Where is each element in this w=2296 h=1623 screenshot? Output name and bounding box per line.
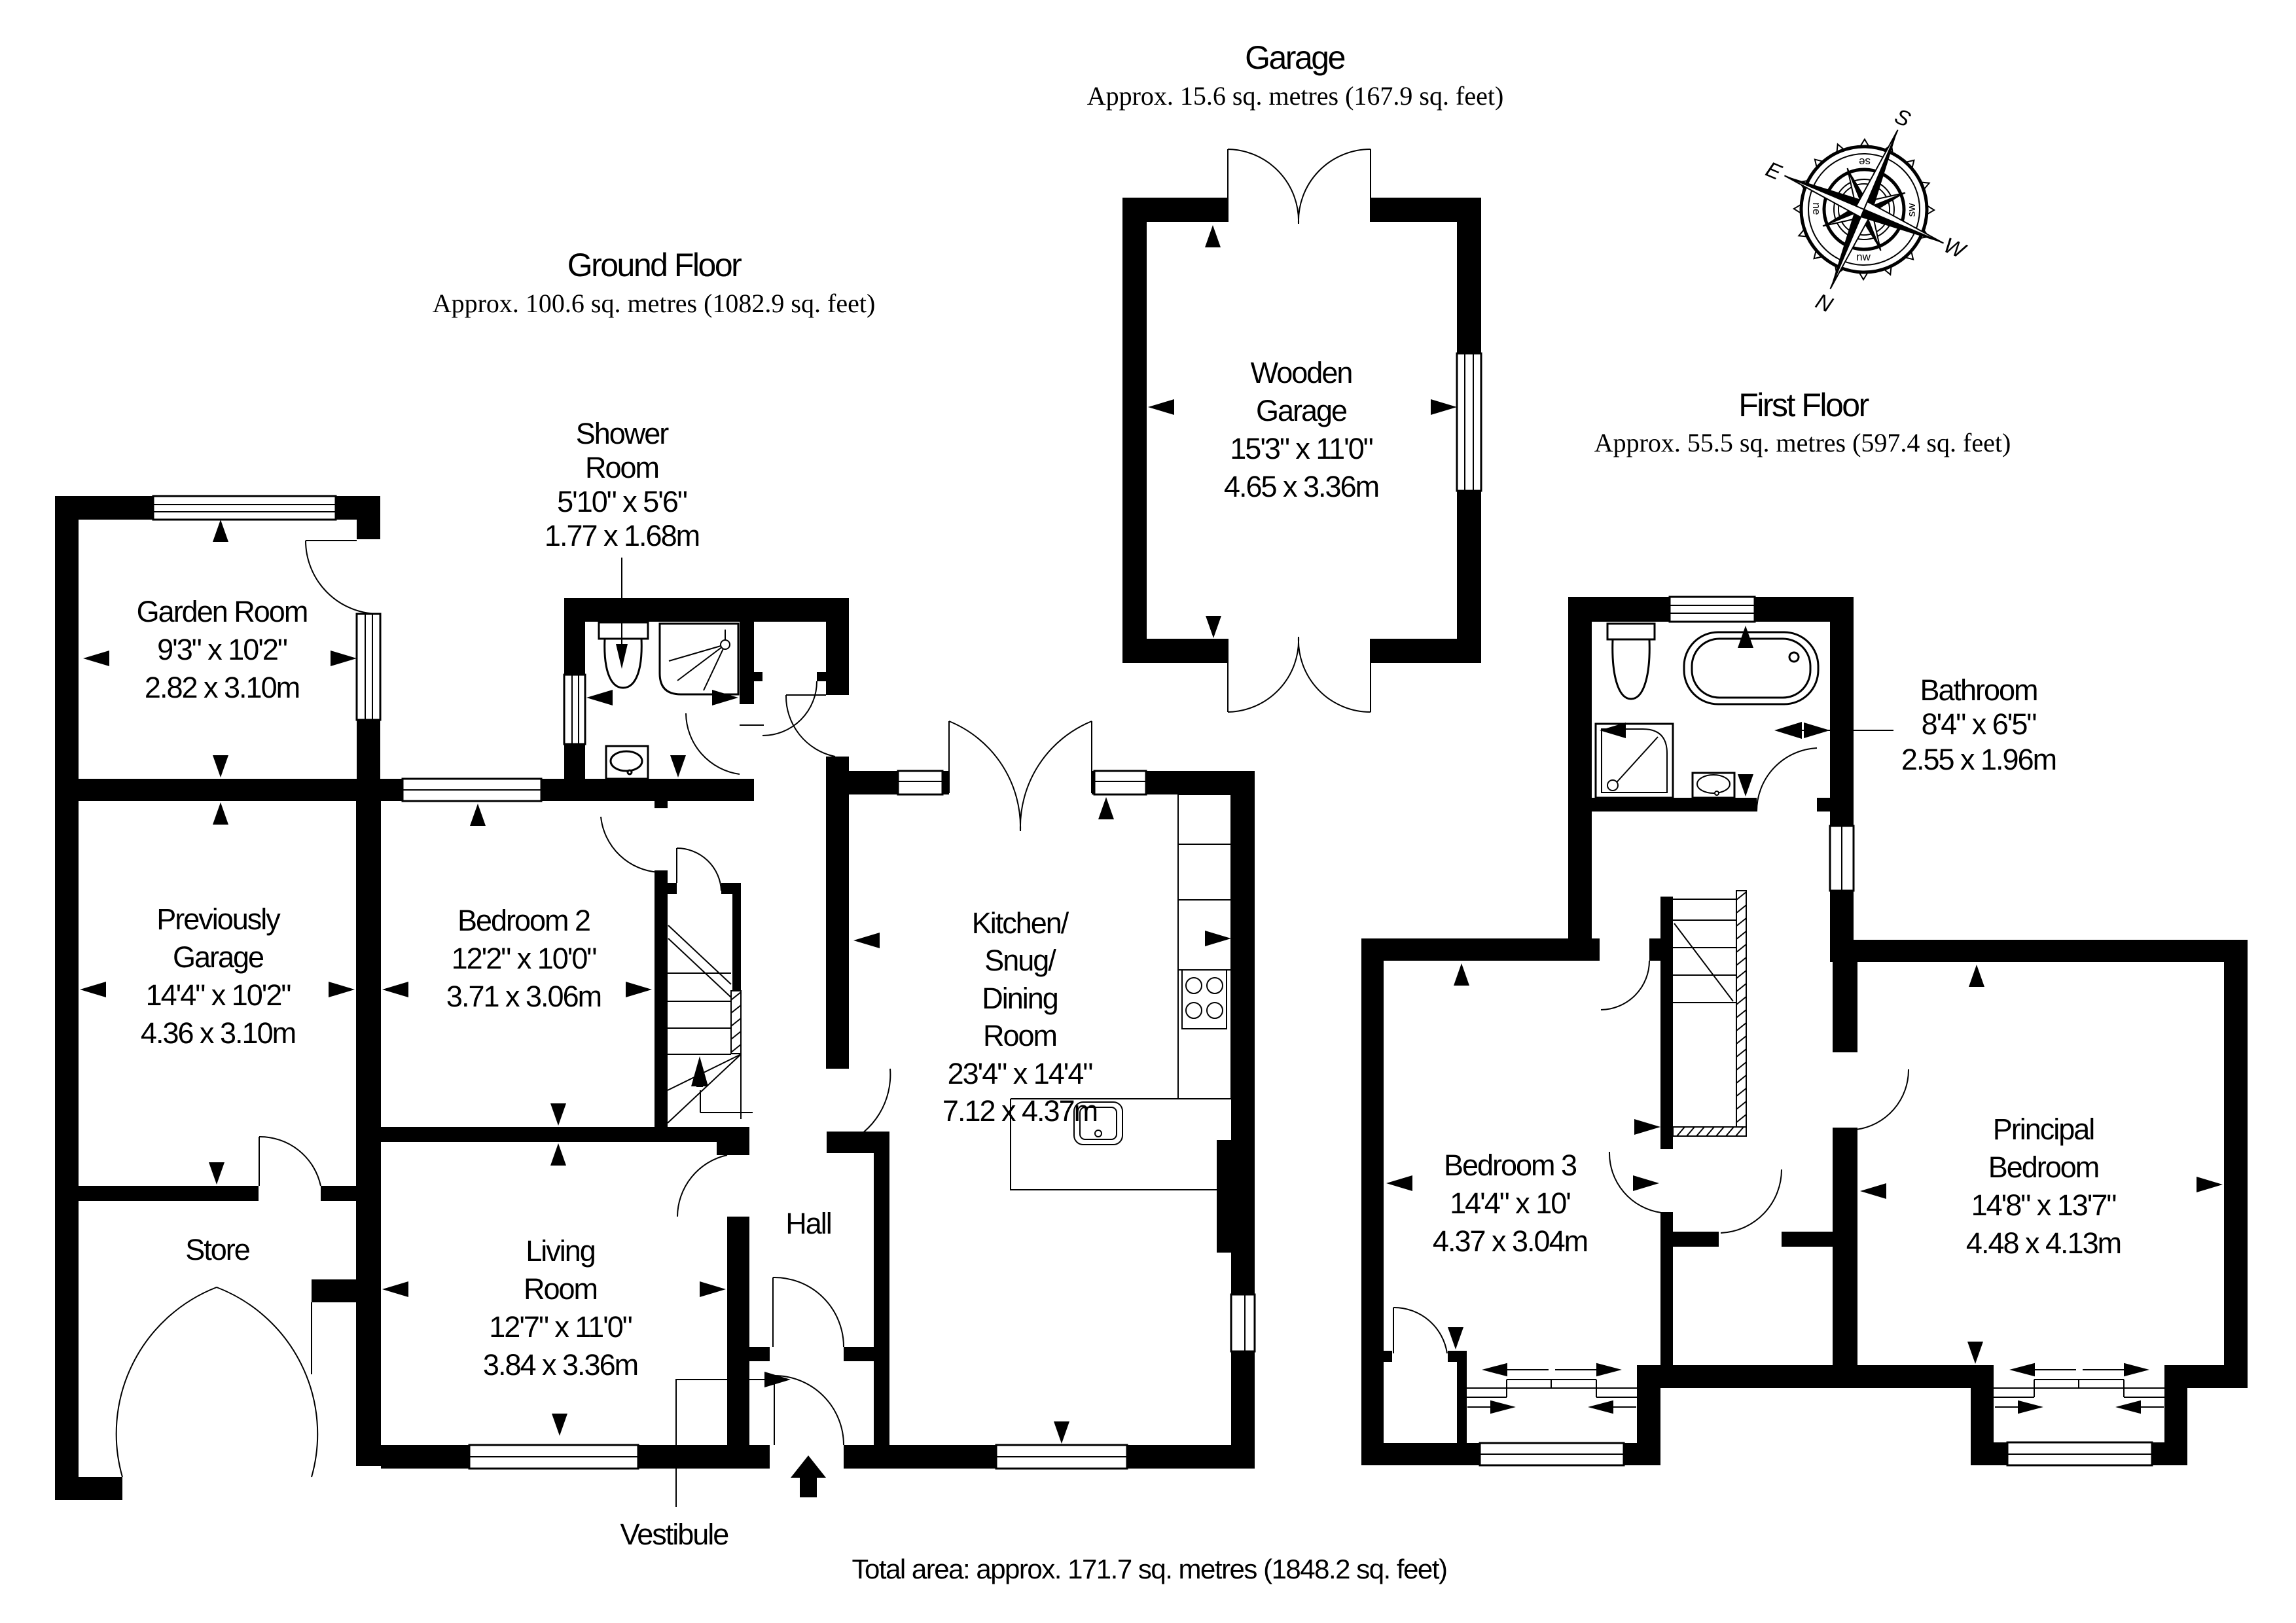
svg-text:Kitchen/: Kitchen/	[972, 906, 1069, 940]
svg-text:Approx. 100.6 sq. metres (1082: Approx. 100.6 sq. metres (1082.9 sq. fee…	[433, 289, 876, 318]
svg-text:ne: ne	[1810, 203, 1823, 215]
svg-text:2.82 x 3.10m: 2.82 x 3.10m	[145, 671, 299, 704]
svg-text:se: se	[1859, 156, 1871, 168]
svg-text:14'4" x 10'2": 14'4" x 10'2"	[146, 978, 291, 1012]
svg-text:Bedroom 3: Bedroom 3	[1444, 1149, 1577, 1182]
svg-text:3.71 x 3.06m: 3.71 x 3.06m	[446, 980, 601, 1013]
svg-text:Principal: Principal	[1993, 1113, 2094, 1146]
svg-text:Snug/: Snug/	[984, 944, 1056, 977]
svg-text:Bedroom 2: Bedroom 2	[457, 904, 590, 937]
svg-text:4.65 x 3.36m: 4.65 x 3.36m	[1224, 470, 1378, 503]
svg-text:Room: Room	[585, 451, 658, 484]
svg-text:Dining: Dining	[982, 982, 1058, 1015]
svg-text:14'8" x 13'7": 14'8" x 13'7"	[1971, 1188, 2117, 1222]
svg-text:Store: Store	[185, 1233, 250, 1266]
svg-text:12'7" x 11'0": 12'7" x 11'0"	[489, 1310, 632, 1344]
svg-text:9'3" x 10'2": 9'3" x 10'2"	[157, 633, 287, 666]
svg-text:Room: Room	[524, 1272, 597, 1306]
svg-text:15'3" x 11'0": 15'3" x 11'0"	[1230, 432, 1372, 465]
svg-text:Garage: Garage	[173, 940, 264, 974]
svg-text:nw: nw	[1856, 251, 1871, 263]
svg-text:Garage: Garage	[1245, 39, 1344, 76]
svg-text:3.84 x 3.36m: 3.84 x 3.36m	[483, 1348, 637, 1382]
svg-text:sw: sw	[1905, 203, 1918, 217]
svg-text:Vestibule: Vestibule	[620, 1518, 729, 1551]
svg-text:Ground Floor: Ground Floor	[567, 247, 742, 283]
svg-text:Previously: Previously	[156, 902, 281, 936]
svg-text:4.36 x 3.10m: 4.36 x 3.10m	[141, 1016, 295, 1050]
svg-text:Garage: Garage	[1256, 394, 1347, 427]
svg-text:8'4" x 6'5": 8'4" x 6'5"	[1922, 707, 2037, 741]
svg-text:4.48 x 4.13m: 4.48 x 4.13m	[1966, 1226, 2121, 1260]
svg-text:Hall: Hall	[785, 1207, 831, 1240]
svg-text:1.77 x 1.68m: 1.77 x 1.68m	[545, 519, 699, 552]
svg-text:Shower: Shower	[576, 417, 670, 450]
svg-text:Garden Room: Garden Room	[137, 595, 308, 628]
svg-text:Wooden: Wooden	[1251, 356, 1352, 389]
svg-text:First Floor: First Floor	[1738, 387, 1869, 423]
svg-text:Bathroom: Bathroom	[1920, 673, 2037, 707]
svg-text:Approx. 55.5 sq. metres (597.4: Approx. 55.5 sq. metres (597.4 sq. feet)	[1594, 428, 2011, 457]
svg-text:12'2" x 10'0": 12'2" x 10'0"	[452, 942, 597, 975]
svg-text:2.55 x 1.96m: 2.55 x 1.96m	[1901, 743, 2056, 776]
svg-text:Room: Room	[983, 1019, 1056, 1052]
svg-text:5'10" x 5'6": 5'10" x 5'6"	[557, 485, 687, 518]
svg-text:14'4" x 10': 14'4" x 10'	[1450, 1186, 1570, 1220]
svg-text:Living: Living	[526, 1234, 595, 1268]
svg-text:23'4" x 14'4": 23'4" x 14'4"	[948, 1057, 1093, 1090]
svg-text:Approx. 15.6 sq. metres (167.9: Approx. 15.6 sq. metres (167.9 sq. feet)	[1087, 81, 1504, 111]
svg-text:Bedroom: Bedroom	[1988, 1150, 2099, 1184]
svg-text:7.12 x 4.37m: 7.12 x 4.37m	[942, 1094, 1097, 1128]
svg-text:4.37 x 3.04m: 4.37 x 3.04m	[1433, 1224, 1587, 1258]
svg-text:Total area: approx. 171.7 sq.: Total area: approx. 171.7 sq. metres (18…	[852, 1554, 1447, 1584]
